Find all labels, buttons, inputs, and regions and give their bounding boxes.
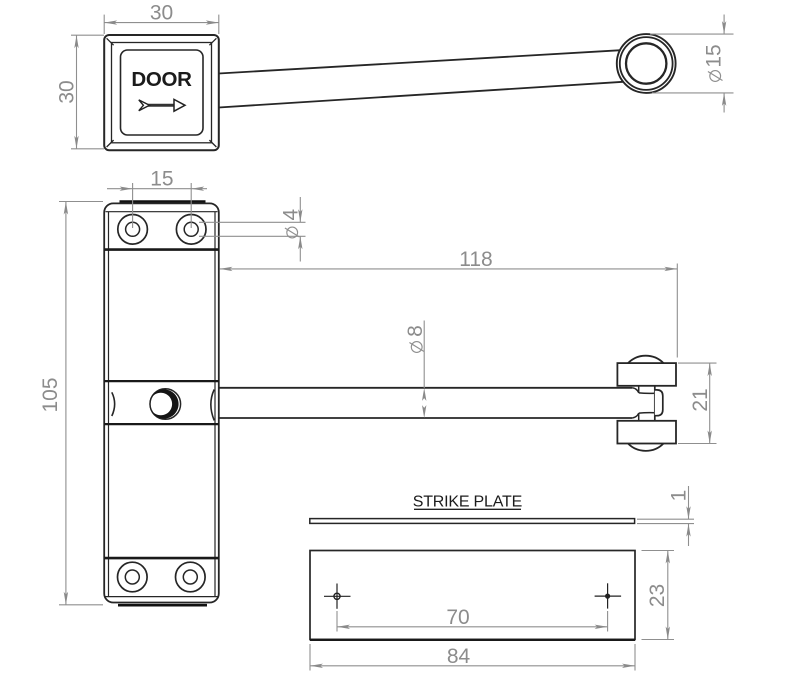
svg-text:105: 105 — [39, 377, 62, 412]
svg-text:21: 21 — [689, 388, 712, 411]
svg-text:8: 8 — [404, 325, 427, 337]
svg-text:1: 1 — [668, 490, 691, 502]
svg-text:DOOR: DOOR — [131, 68, 192, 91]
svg-text:STRIKE PLATE: STRIKE PLATE — [413, 493, 522, 510]
svg-text:15: 15 — [703, 44, 726, 67]
svg-text:30: 30 — [56, 80, 79, 103]
svg-text:30: 30 — [150, 2, 173, 25]
svg-text:15: 15 — [150, 168, 173, 191]
svg-text:4: 4 — [280, 209, 303, 221]
svg-text:118: 118 — [459, 248, 492, 271]
svg-text:84: 84 — [447, 645, 471, 668]
svg-text:70: 70 — [446, 606, 469, 629]
svg-text:23: 23 — [646, 584, 669, 607]
